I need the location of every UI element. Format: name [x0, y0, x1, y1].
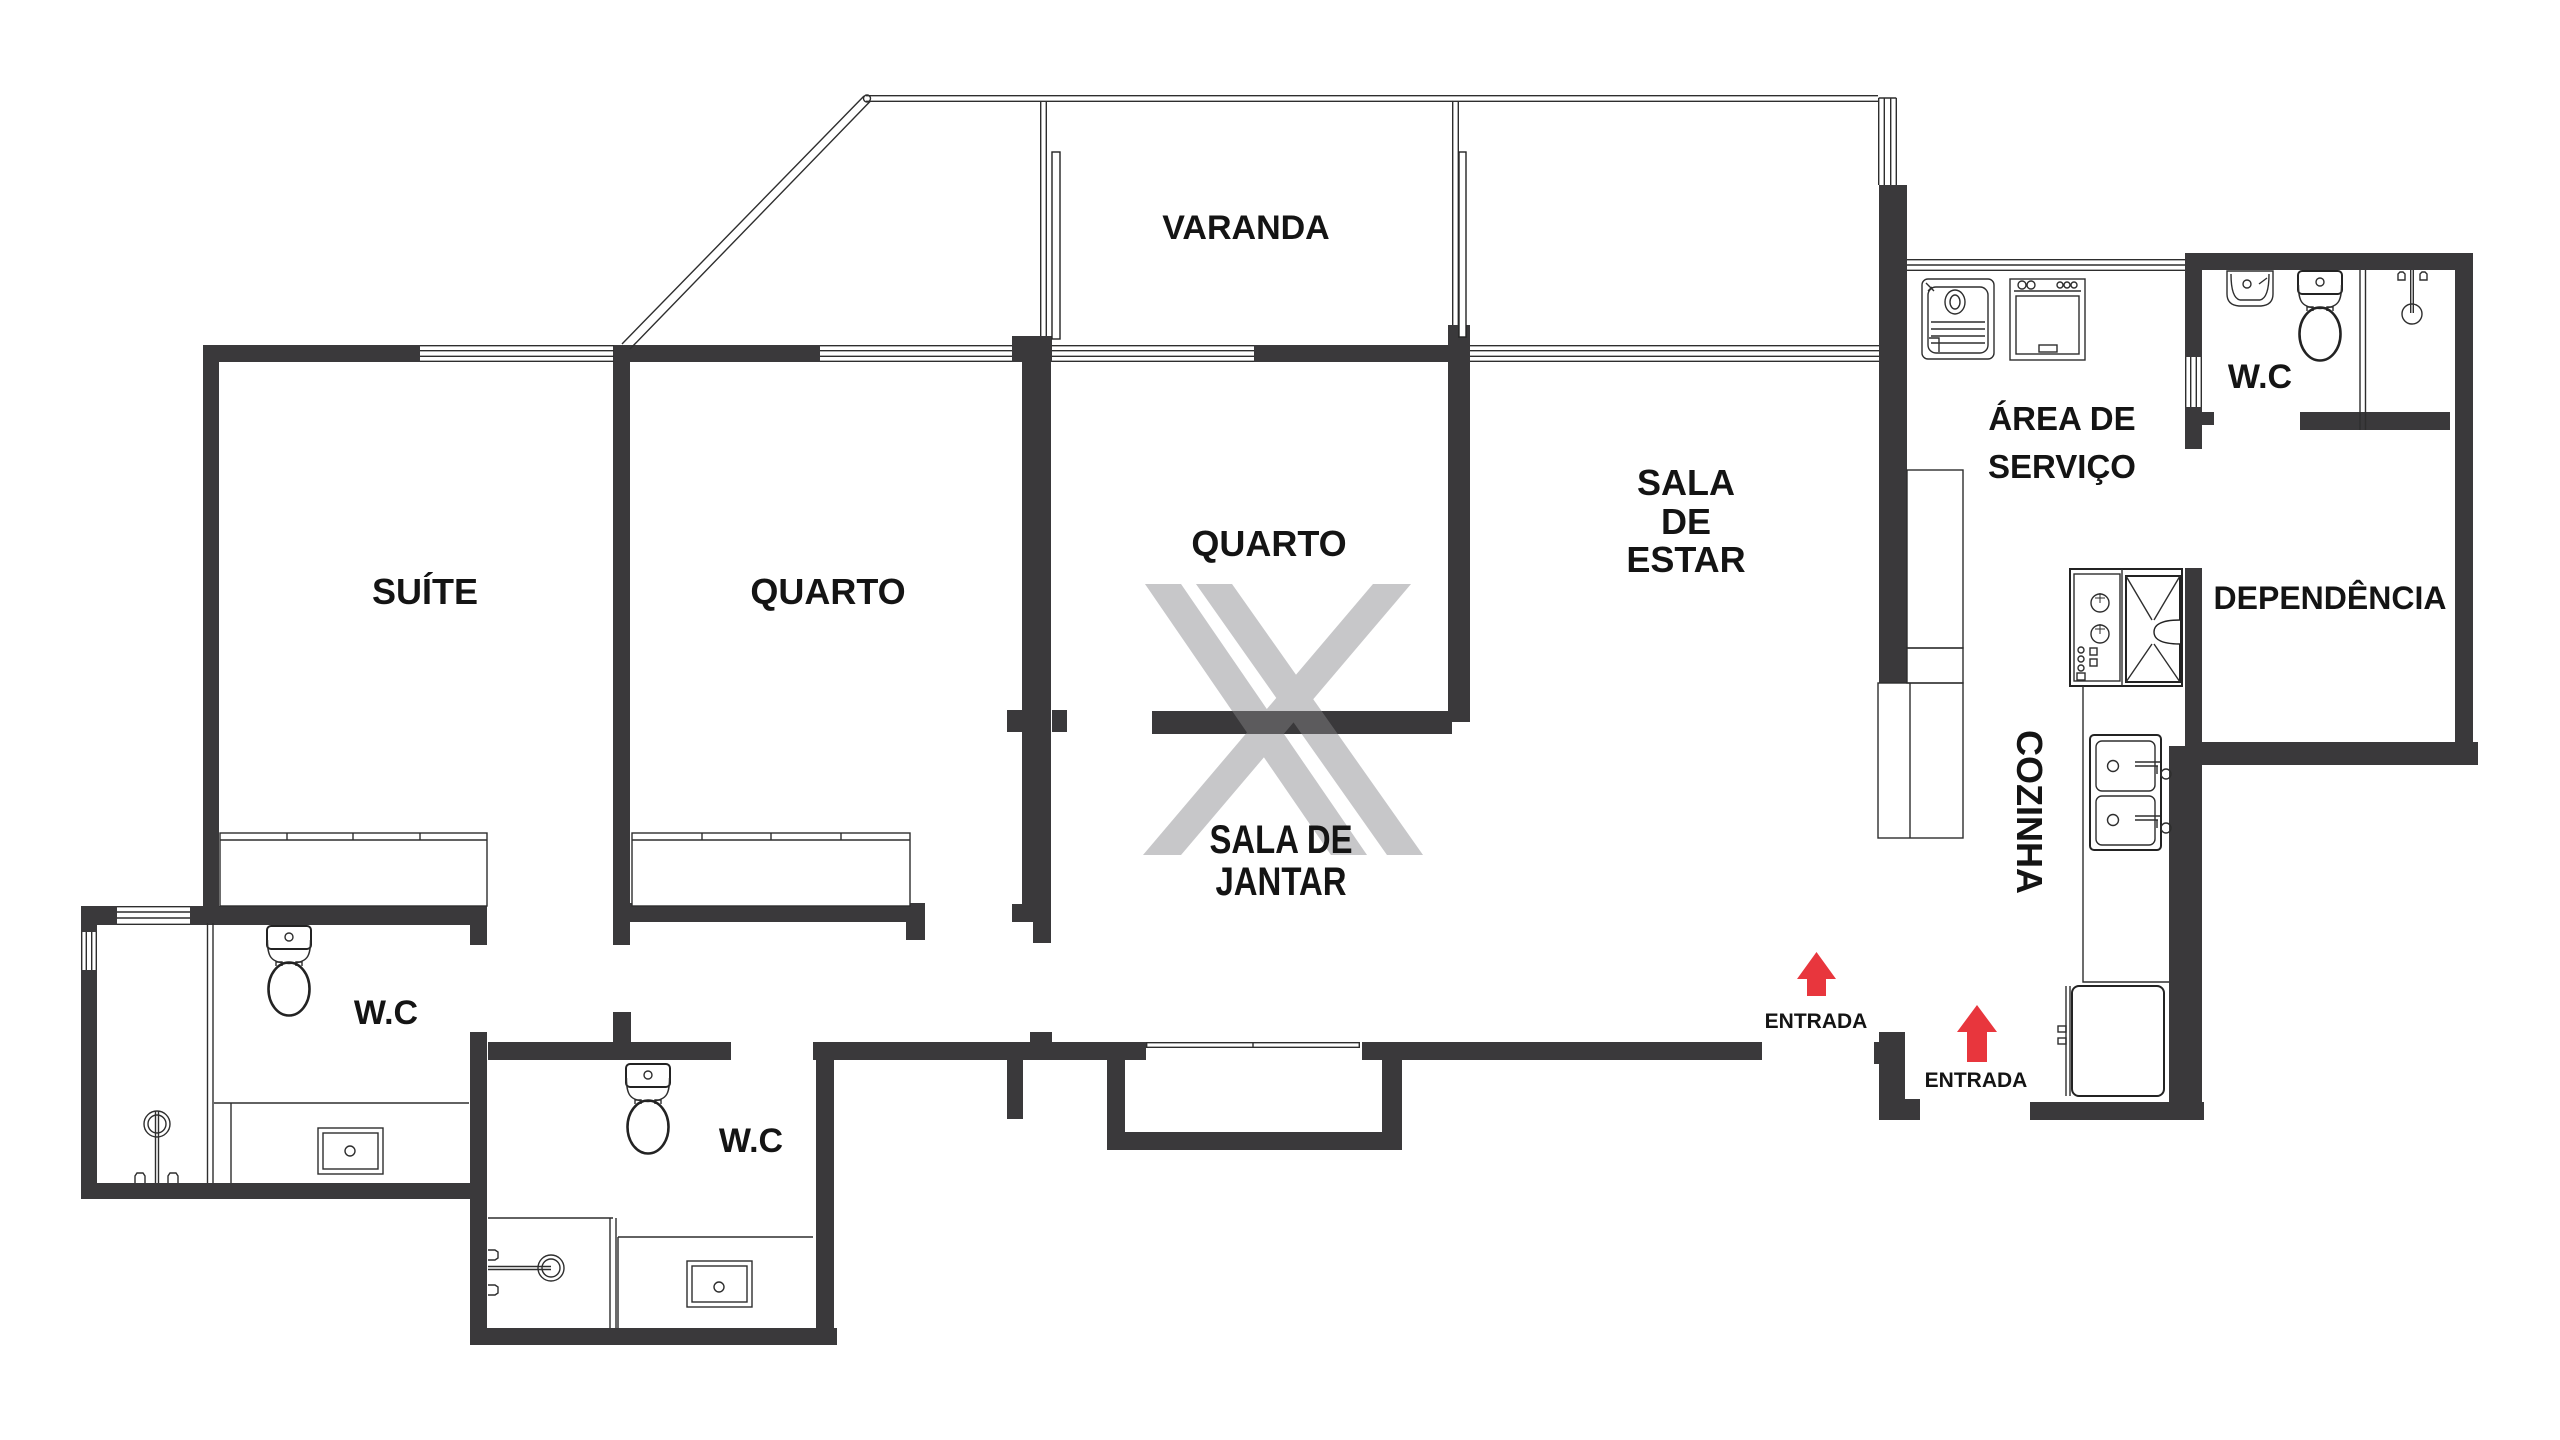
svg-text:ESTAR: ESTAR [1626, 539, 1745, 580]
svg-text:SALA: SALA [1637, 462, 1735, 503]
svg-text:QUARTO: QUARTO [1191, 523, 1346, 564]
svg-text:ÁREA DE: ÁREA DE [1988, 400, 2135, 437]
svg-text:W.C: W.C [719, 1122, 783, 1160]
svg-text:SUÍTE: SUÍTE [372, 571, 478, 612]
svg-text:W.C: W.C [354, 994, 418, 1032]
svg-text:VARANDA: VARANDA [1162, 209, 1329, 247]
svg-text:ENTRADA: ENTRADA [1765, 1010, 1868, 1033]
svg-text:SALA DE: SALA DE [1210, 818, 1353, 862]
svg-text:QUARTO: QUARTO [750, 571, 905, 612]
svg-text:DEPENDÊNCIA: DEPENDÊNCIA [2214, 580, 2447, 616]
svg-text:SERVIÇO: SERVIÇO [1988, 448, 2136, 485]
svg-text:W.C: W.C [2228, 358, 2292, 396]
svg-text:DE: DE [1661, 501, 1711, 542]
svg-text:ENTRADA: ENTRADA [1925, 1069, 2028, 1092]
svg-text:COZINHA: COZINHA [2009, 730, 2050, 894]
svg-text:JANTAR: JANTAR [1216, 860, 1347, 904]
